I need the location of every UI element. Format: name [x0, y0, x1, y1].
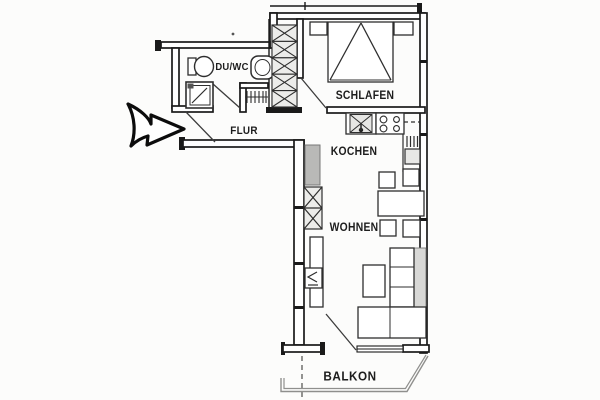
bed-icon: [328, 22, 393, 82]
floor-plan-drawing: [0, 0, 600, 400]
coffee-table: [363, 265, 385, 297]
door-swing-schlafen: [301, 78, 326, 108]
wall-flur-south: [183, 140, 304, 147]
room-wohnen: [305, 237, 426, 338]
chair: [403, 169, 419, 186]
wall-duwc-top-cap: [155, 40, 161, 51]
room-schlafen: [310, 22, 413, 82]
radiator-icon: [407, 136, 418, 147]
wall-joint-tick: [420, 60, 427, 63]
chair: [403, 220, 420, 237]
room-label-flur: FLUR: [230, 125, 257, 137]
floor-plan: DU/WC SCHLAFEN FLUR KOCHEN WOHNEN BALKON: [0, 0, 600, 400]
wall-duwc-left: [172, 48, 179, 108]
wall-balcony-right: [403, 345, 429, 352]
dining-table: [378, 191, 424, 216]
plan-dot: [232, 33, 235, 36]
nightstand: [394, 22, 413, 35]
room-label-kochen: KOCHEN: [331, 146, 377, 158]
wardrobe-icon: [272, 25, 297, 107]
balcony-window: [357, 346, 403, 352]
wall-joint-tick: [294, 306, 304, 309]
door-swing-balcony: [326, 314, 356, 350]
wall-duwc-top: [161, 42, 270, 48]
room-label-duwc: DU/WC: [215, 61, 248, 73]
wall-joint-tick: [294, 206, 304, 209]
tv-icon: [305, 268, 322, 288]
dining-set: [378, 169, 424, 237]
chair: [379, 172, 395, 188]
kitchen-block: [305, 145, 320, 185]
wall-schlafen-bottom: [327, 107, 425, 113]
door-swing-duwc: [213, 84, 240, 108]
chair: [380, 220, 396, 236]
room-label-wohnen: WOHNEN: [330, 222, 379, 234]
wall-joint-tick: [420, 218, 427, 221]
wall-joint-tick: [420, 133, 427, 136]
kitchen-appliance: [405, 149, 420, 164]
nightstand: [310, 22, 327, 35]
counter-right: [403, 134, 420, 172]
wall-top: [270, 13, 425, 19]
kitchen-sink-icon: [346, 113, 376, 134]
wall-wardrobe-right: [297, 19, 303, 78]
door-swings: [186, 78, 356, 350]
roof-edge-cap: [417, 3, 422, 13]
shower-icon: [186, 82, 213, 108]
radiator-icon: [245, 91, 268, 103]
room-label-schlafen: SCHLAFEN: [336, 90, 395, 102]
wall-balcony-left: [283, 345, 322, 352]
shelf-cabinet: [304, 187, 322, 229]
wall-wardrobe-bottom-bar: [266, 107, 302, 113]
wall-corridor-vertical: [294, 140, 304, 345]
door-swing-entrance: [186, 112, 215, 142]
room-label-balkon: BALKON: [323, 369, 376, 384]
wall-duwc-jog-horizontal: [240, 83, 268, 88]
stove-icon: [376, 113, 404, 134]
wall-joint-tick: [294, 262, 304, 265]
wall-balcony-cap-mid: [320, 342, 325, 355]
toilet-icon: [188, 57, 214, 77]
